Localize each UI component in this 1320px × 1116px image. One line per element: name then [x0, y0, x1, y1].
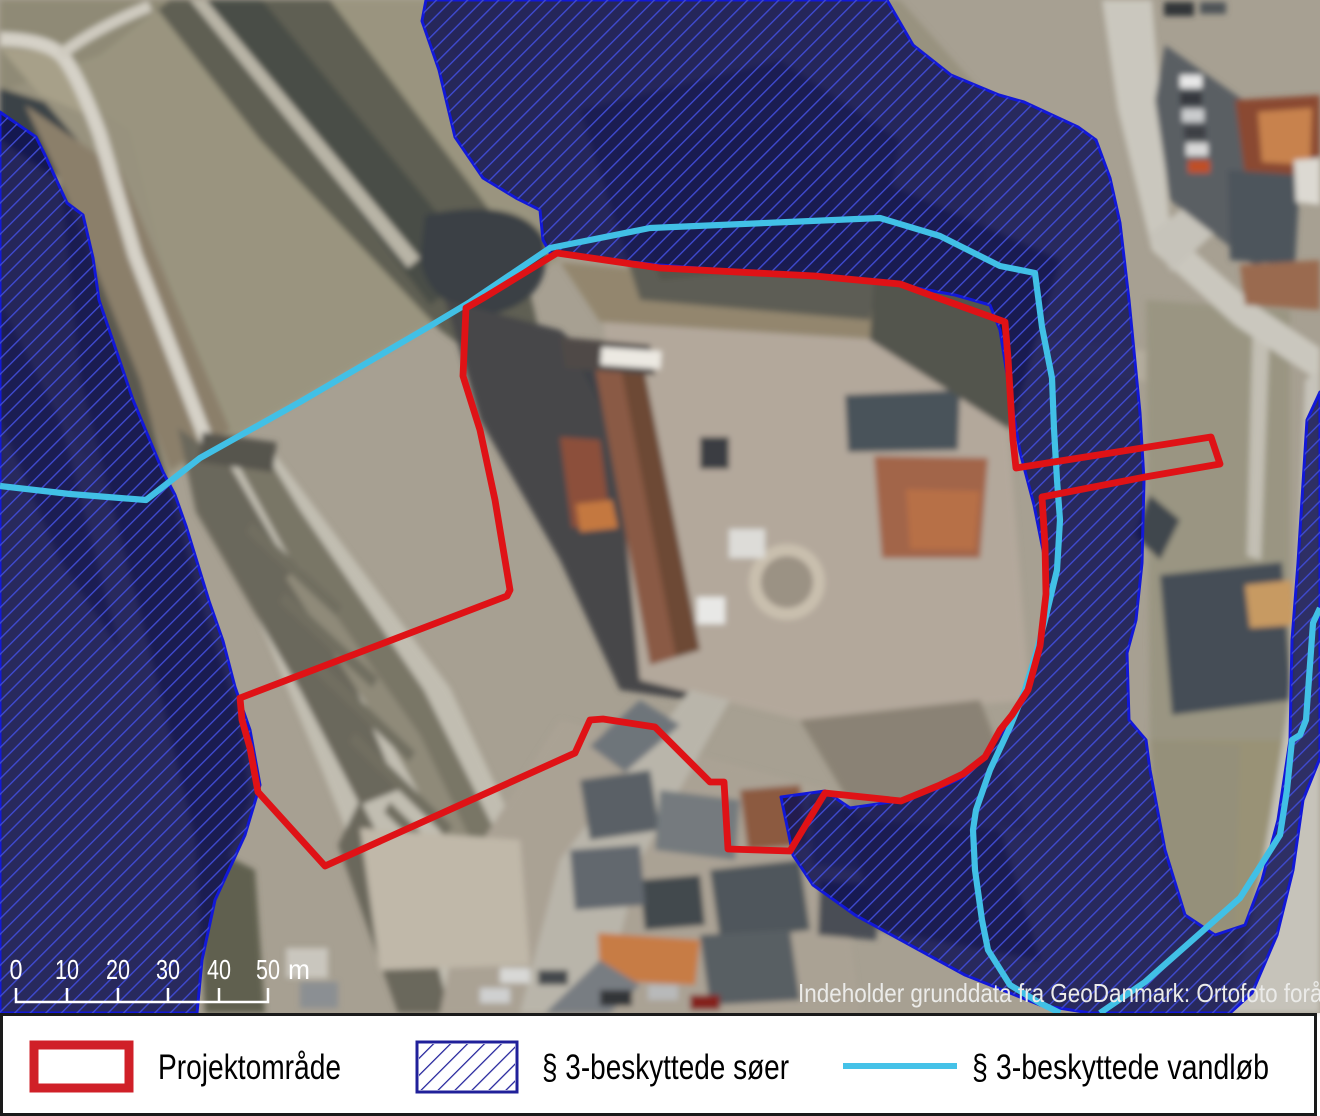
svg-text:40: 40	[207, 954, 231, 985]
svg-text:50: 50	[256, 954, 280, 985]
svg-text:20: 20	[106, 954, 130, 985]
svg-text:Projektområde: Projektområde	[158, 1048, 341, 1087]
svg-text:10: 10	[55, 954, 79, 985]
svg-text:§ 3-beskyttede vandløb: § 3-beskyttede vandløb	[972, 1048, 1269, 1087]
svg-text:Indeholder grunddata fra GeoDa: Indeholder grunddata fra GeoDanmark: Ort…	[798, 978, 1320, 1008]
svg-text:m: m	[288, 954, 310, 985]
svg-text:0: 0	[10, 954, 23, 985]
svg-text:§ 3-beskyttede søer: § 3-beskyttede søer	[542, 1048, 789, 1087]
svg-text:30: 30	[156, 954, 180, 985]
